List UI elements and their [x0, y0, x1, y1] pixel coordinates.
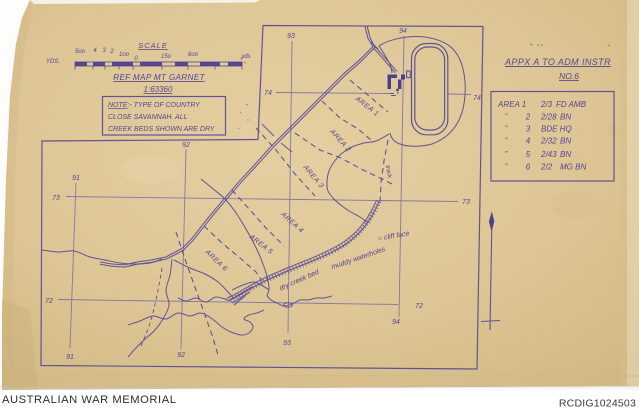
svg-text:RCDIG1024503: RCDIG1024503 [559, 398, 636, 409]
svg-text:AUSTRALIAN WAR MEMORIAL: AUSTRALIAN WAR MEMORIAL [2, 394, 176, 406]
